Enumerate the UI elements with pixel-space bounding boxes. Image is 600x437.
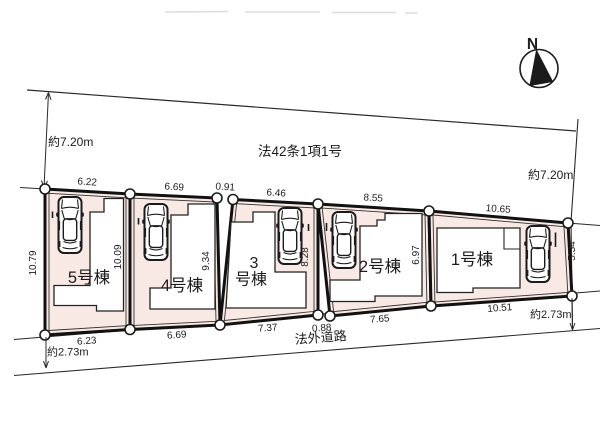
svg-text:10.79: 10.79	[28, 250, 39, 275]
svg-text:6.69: 6.69	[164, 181, 185, 193]
svg-text:10.09: 10.09	[113, 244, 124, 269]
svg-text:6.69: 6.69	[167, 329, 188, 341]
svg-text:7.65: 7.65	[370, 313, 391, 325]
svg-text:4号棟: 4号棟	[161, 276, 204, 295]
svg-text:1号棟: 1号棟	[451, 250, 494, 269]
svg-text:約7.20m: 約7.20m	[48, 134, 93, 149]
svg-text:2号棟: 2号棟	[359, 257, 402, 276]
svg-text:法42条1項1号: 法42条1項1号	[258, 143, 342, 159]
svg-text:6.97: 6.97	[411, 245, 422, 265]
svg-text:7.37: 7.37	[258, 322, 279, 334]
svg-text:3: 3	[250, 255, 259, 272]
svg-text:10.65: 10.65	[485, 203, 511, 216]
svg-text:0.91: 0.91	[215, 181, 236, 193]
svg-text:6.46: 6.46	[266, 187, 287, 199]
svg-text:約2.73m: 約2.73m	[530, 307, 572, 321]
svg-text:N: N	[527, 36, 538, 53]
svg-text:9.34: 9.34	[201, 251, 212, 271]
svg-text:5号棟: 5号棟	[68, 268, 111, 287]
svg-text:6.22: 6.22	[77, 176, 98, 188]
svg-text:号棟: 号棟	[235, 271, 267, 289]
svg-text:5.34: 5.34	[567, 241, 578, 261]
svg-text:8.55: 8.55	[363, 192, 384, 204]
svg-text:8.28: 8.28	[300, 247, 311, 267]
svg-text:10.51: 10.51	[487, 302, 513, 315]
svg-text:6.23: 6.23	[77, 335, 98, 347]
svg-text:約7.20m: 約7.20m	[528, 167, 573, 182]
